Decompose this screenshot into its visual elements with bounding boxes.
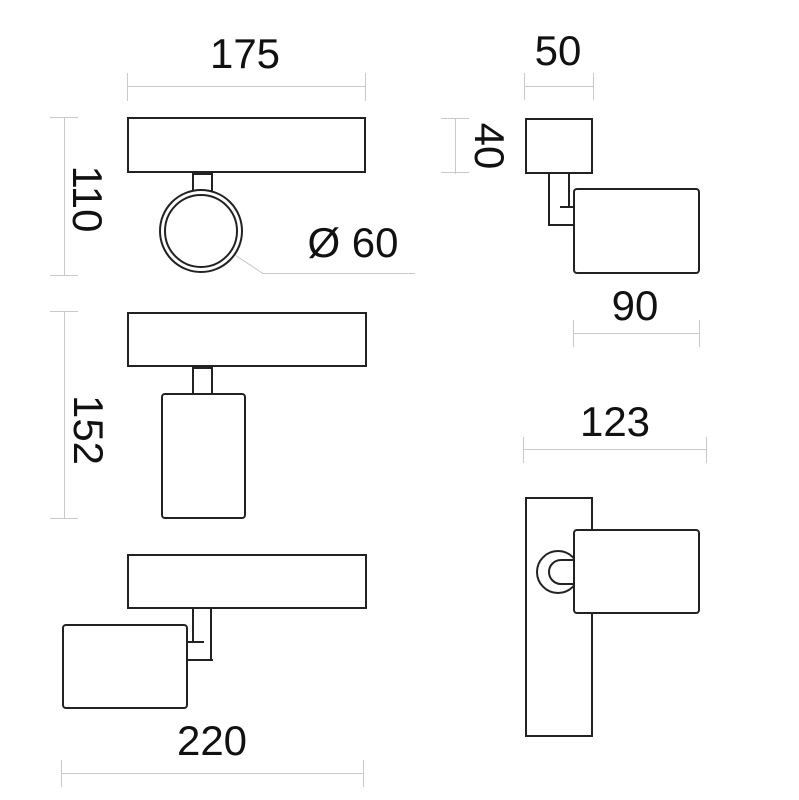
stem-line-left <box>192 609 194 643</box>
spot-body-rect <box>161 393 246 519</box>
track-base-rect <box>127 554 367 609</box>
dim-line-front-width <box>127 86 366 87</box>
leader-line-horizontal <box>262 273 415 274</box>
canopy-rect <box>525 118 593 174</box>
dim-tick <box>441 172 469 173</box>
spot-head-rect <box>573 188 700 274</box>
dim-tick <box>441 118 469 119</box>
stem-pivot-tick <box>560 206 574 208</box>
track-base-rect <box>127 312 367 367</box>
dim-label-diameter: Ø 60 <box>307 222 398 264</box>
stem-line-right <box>568 172 570 208</box>
dim-tick <box>524 73 525 100</box>
dim-label-canopy-height: 40 <box>468 123 510 170</box>
track-base-rect <box>127 117 366 173</box>
stem-pivot-tick <box>188 641 204 643</box>
dim-tick <box>593 73 594 100</box>
spot-head-rect <box>573 529 700 614</box>
leader-line-diagonal <box>235 255 263 274</box>
dim-label-head-length: 90 <box>612 285 659 327</box>
stem-line-left <box>548 172 550 226</box>
dim-line-canopy-width <box>524 86 594 87</box>
dim-label-side-depth: 123 <box>580 401 650 443</box>
dim-tick <box>61 760 62 787</box>
stem-line-bottom <box>188 659 213 661</box>
technical-drawing-canvas: 175 110 Ø 60 152 <box>0 0 799 800</box>
dim-tick <box>127 73 128 101</box>
dim-label-total-height: 152 <box>67 395 109 465</box>
dim-line-overall-width <box>61 773 364 774</box>
dim-line-total-height <box>64 312 65 519</box>
lens-inner-circle <box>164 194 238 268</box>
dim-line-head-length <box>573 333 700 334</box>
dim-label-canopy-width: 50 <box>535 30 582 72</box>
dim-label-front-width: 175 <box>210 33 280 75</box>
dim-label-front-height: 110 <box>66 166 108 233</box>
dim-tick <box>573 320 574 347</box>
dim-tick <box>365 73 366 101</box>
stem-line-right <box>210 609 212 661</box>
dim-label-overall-width: 220 <box>177 720 247 762</box>
dim-tick <box>50 117 78 118</box>
dim-tick <box>50 518 78 519</box>
dim-tick <box>50 275 78 276</box>
dim-tick <box>706 437 707 463</box>
dim-line-front-height <box>64 117 65 276</box>
dim-tick <box>523 437 524 463</box>
spot-head-rect <box>62 624 188 709</box>
dim-line-side-depth <box>523 449 707 450</box>
stem-line-bottom <box>548 224 574 226</box>
dim-tick <box>699 320 700 347</box>
dim-tick <box>50 311 78 312</box>
dim-tick <box>363 760 364 787</box>
pivot-stem <box>192 367 213 395</box>
dim-line-canopy-height <box>455 118 456 174</box>
